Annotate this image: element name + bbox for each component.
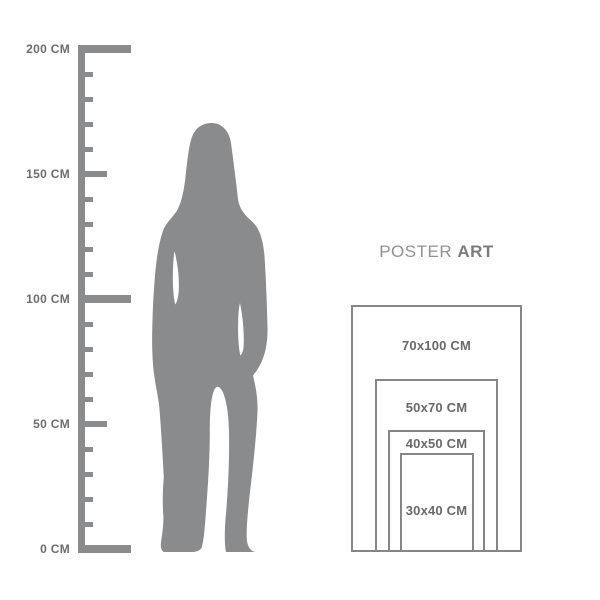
poster-title-regular: POSTER	[379, 242, 452, 261]
size-label-70x100: 70x100 CM	[351, 339, 522, 353]
size-label-30x40: 30x40 CM	[351, 504, 522, 518]
poster-title-bold: ART	[457, 242, 493, 261]
size-label-50x70: 50x70 CM	[351, 401, 522, 415]
poster-title: POSTER ART	[351, 243, 522, 261]
woman-silhouette-body	[152, 123, 267, 552]
size-label-40x50: 40x50 CM	[351, 437, 522, 451]
size-guide-diagram: 200 CM 150 CM 100 CM 50 CM 0 CM POSTER A…	[0, 0, 600, 600]
